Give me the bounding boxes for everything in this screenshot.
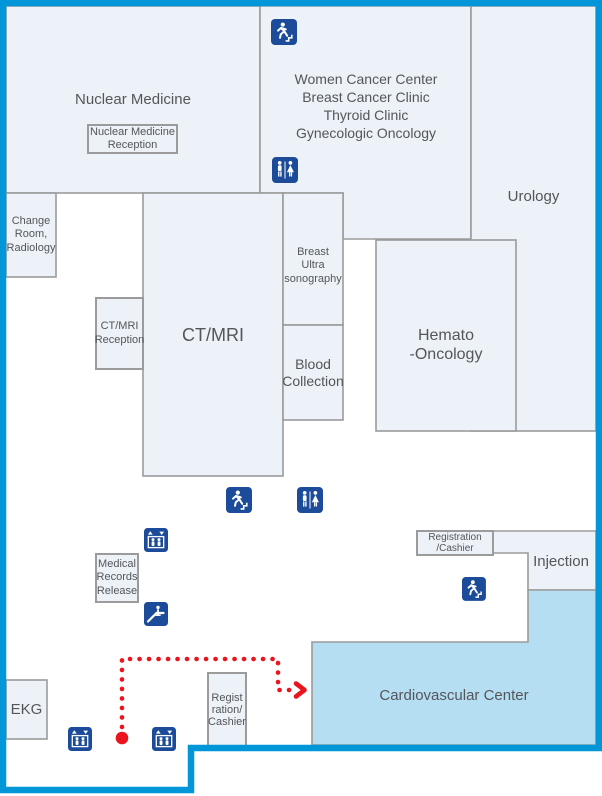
room-cardiovascular-center [312, 590, 596, 745]
emergency-exit-icon [462, 577, 486, 601]
box-registration-cashier-upper [417, 531, 493, 555]
elevator-icon [144, 528, 168, 552]
room-hemato-oncology [376, 240, 516, 431]
elevator-icon [68, 727, 92, 751]
floor-plan-svg [0, 0, 602, 796]
route-dotted-line [122, 659, 291, 727]
floor-map: Nuclear Medicine Nuclear Medicine Recept… [0, 0, 602, 796]
box-ct-mri-reception [96, 298, 143, 369]
room-injection [493, 531, 596, 590]
room-breast-ultrasonography [283, 193, 343, 325]
restroom-icon [272, 157, 298, 183]
room-nuclear-medicine [6, 6, 260, 193]
box-registration-cashier-lower [208, 673, 246, 747]
emergency-exit-icon [271, 19, 297, 45]
emergency-exit-icon [226, 487, 252, 513]
route-start-dot [116, 732, 129, 745]
room-blood-collection [283, 325, 343, 420]
route-arrow-head [296, 684, 305, 697]
room-ekg [6, 680, 47, 739]
room-ct-mri [143, 193, 283, 476]
box-nuclear-medicine-reception [88, 125, 177, 153]
box-medical-records-release [96, 554, 138, 602]
escalator-icon [144, 602, 168, 626]
elevator-icon [152, 727, 176, 751]
restroom-icon [297, 487, 323, 513]
room-change-room-radiology [6, 193, 56, 277]
